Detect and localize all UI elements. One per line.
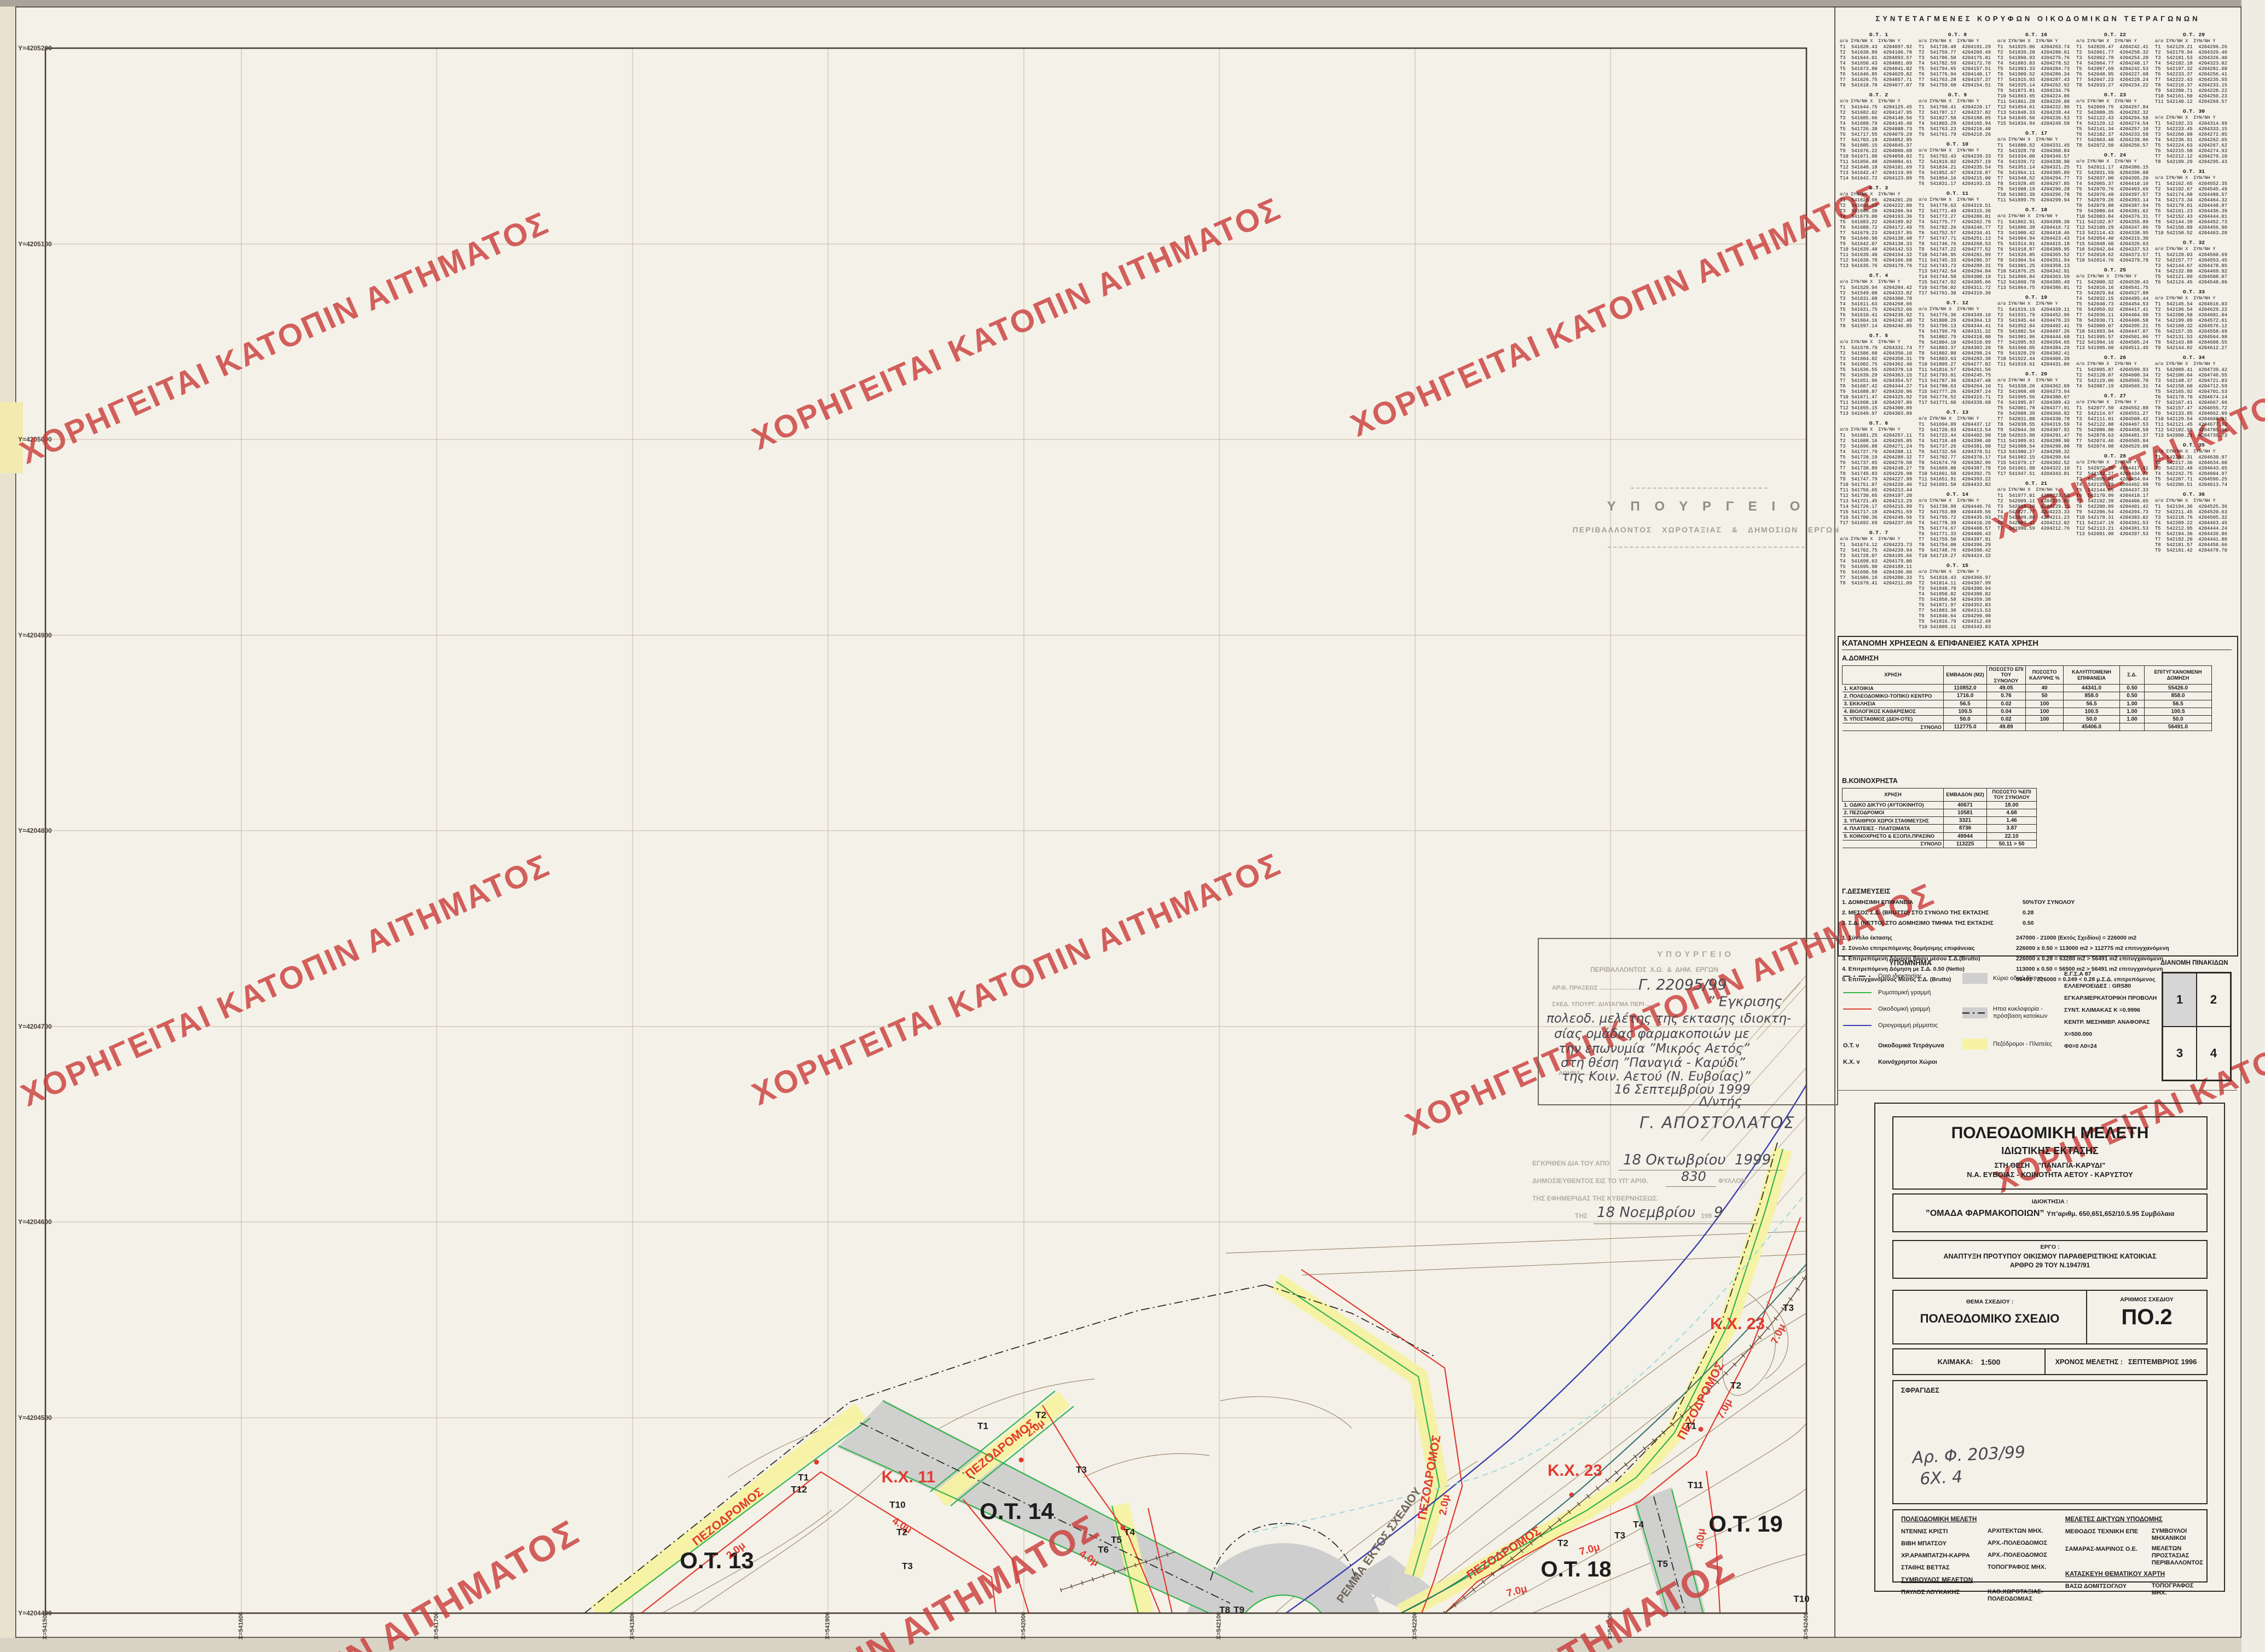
legend-line-item: Ρυμοτομική γραμμή: [1843, 989, 1931, 996]
usage-a-title: Α.ΔΟΜΗΣΗ: [1842, 654, 1879, 662]
coords-block: Ο.Τ. 33α/α ΣΥΝ/ΝΗ X ΣΥΝ/ΝΗ YT1 542145.54…: [2155, 289, 2233, 351]
usage-col-header: ΚΑΛΥΠΤΟΜΕΝΗ ΕΠΙΦΑΝΕΙΑ: [2064, 666, 2120, 685]
x-axis-label: X=542400: [1804, 1612, 1810, 1639]
team-section-header: ΣΥΜΒΟΥΛΟΣ ΜΕΛΕΤΩΝ: [1901, 1576, 2063, 1585]
plate-cell: 4: [2197, 1027, 2231, 1080]
coords-block: Ο.Τ. 36α/α ΣΥΝ/ΝΗ X ΣΥΝ/ΝΗ YT1 542194.36…: [2155, 491, 2233, 553]
theme-label: ΘΕΜΑ ΣΧΕΔΙΟΥ :: [1893, 1299, 2086, 1305]
usage-cell: 1.00: [2120, 700, 2145, 708]
x-axis-label: X=542000: [1021, 1612, 1027, 1639]
usage-table-a: ΧΡΗΣΗΕΜΒΑΔΟΝ (Μ2)ΠΟΣΟΣΤΟ ΕΠΙ ΤΟΥ ΣΥΝΟΛΟΥ…: [1842, 665, 2212, 731]
usage-cell: 5. ΥΠΟΣΤΑΘΜΟΣ (ΔΕΗ-ΟΤΕ): [1843, 715, 1944, 723]
usage-cell: 56.5: [2145, 700, 2212, 708]
coords-block: Ο.Τ. 26α/α ΣΥΝ/ΝΗ X ΣΥΝ/ΝΗ YT1 542095.87…: [2076, 355, 2154, 389]
approval-handwriting: Δ/ντής: [1699, 1096, 1742, 1109]
ownership-box: ΙΔΙΟΚΤΗΣΙΑ : ”ΟΜΑΔΑ ΦΑΡΜΑΚΟΠΟΙΩΝ” Υπ’αρι…: [1892, 1193, 2208, 1232]
legend-swatch-item: Πεζόδρομοι - Πλατείες: [1962, 1039, 2061, 1050]
x-axis-label: X=541500: [43, 1612, 49, 1639]
usage-cell: 1.00: [2120, 708, 2145, 715]
usage-cell: 3. ΕΚΚΛΗΣΙΑ: [1843, 700, 1944, 708]
coords-block: Ο.Τ. 13α/α ΣΥΝ/ΝΗ X ΣΥΝ/ΝΗ YT1 541694.09…: [1919, 409, 1996, 488]
usage-cell: 0.50: [2120, 692, 2145, 700]
stamps-label: ΣΦΡΑΓΙΔΕΣ: [1901, 1387, 2206, 1394]
gazette-handwriting: 18 Οκτωβρίου 1999: [1623, 1153, 1771, 1167]
coords-block: Ο.Τ. 3α/α ΣΥΝ/ΝΗ X ΣΥΝ/ΝΗ YT1 541620.08 …: [1840, 185, 1918, 269]
study-time-label: ΧΡΟΝΟΣ ΜΕΛΕΤΗΣ :: [2055, 1358, 2123, 1366]
scale-label: ΚΛΙΜΑΚΑ:: [1938, 1358, 1973, 1366]
y-axis-label: Y=4204600: [18, 1219, 52, 1225]
t-point-label: T3: [1783, 1303, 1794, 1313]
x-axis-label: X=542100: [1217, 1612, 1223, 1639]
usage-cell: 22.10: [1987, 832, 2037, 840]
gazette-underline: [1666, 1186, 1716, 1187]
usage-col-header: ΧΡΗΣΗ: [1843, 666, 1944, 685]
project-line2: ΑΡΘΡΟ 29 ΤΟΥ Ν.1947/91: [1893, 1261, 2206, 1269]
legend-line-sample: [1843, 1025, 1872, 1027]
usage-total-cell: 45406.0: [2064, 723, 2120, 731]
location-line2: Ν.Α. ΕΥΒΟΙΑΣ - ΚΟΙΝΟΤΗΤΑ ΑΕΤΟΥ - ΚΑΡΥΣΤΟ…: [1893, 1170, 2206, 1179]
approval-handwriting: στη θέση ”Παναγιά - Καρύδι”: [1561, 1057, 1745, 1070]
coords-block: Ο.Τ. 27α/α ΣΥΝ/ΝΗ X ΣΥΝ/ΝΗ YT1 542077.50…: [2076, 393, 2154, 449]
kx-label: Κ.Χ. 23: [1710, 1316, 1765, 1332]
constraint-line: 1. ΔΟΜΗΣΙΜΗ ΕΠΙΦΑΝΕΙΑ50%ΤΟΥ ΣΥΝΟΛΟΥ: [1842, 897, 2233, 908]
t-point-label: T5: [1657, 1560, 1668, 1569]
usage-col-header: ΕΠΙΤΥΓΧΑΝΟΜΕΝΗ ΔΟΜΗΣΗ: [2145, 666, 2212, 685]
number-label: ΑΡΙΘΜΟΣ ΣΧΕΔΙΟΥ: [2087, 1296, 2206, 1303]
usage-cell: 5. ΚΟΙΝΟΧΡΗΣΤΟ & ΕΞΟΠΛ.ΠΡΑΣΙΝΟ: [1843, 832, 1944, 840]
page-edge-top: [0, 0, 2265, 7]
title-box: ΠΟΛΕΟΔΟΜΙΚΗ ΜΕΛΕΤΗ ΙΔΙΩΤΙΚΗΣ ΕΚΤΑΣΗΣ ΣΤΗ…: [1892, 1116, 2208, 1190]
geodetic-note: Χ=500.000: [2064, 1031, 2092, 1037]
coords-block: Ο.Τ. 25α/α ΣΥΝ/ΝΗ X ΣΥΝ/ΝΗ YT1 542000.32…: [2076, 267, 2154, 351]
usage-col-header: ΧΡΗΣΗ: [1843, 789, 1944, 802]
coords-block: Ο.Τ. 11α/α ΣΥΝ/ΝΗ X ΣΥΝ/ΝΗ YT1 541770.63…: [1919, 190, 1996, 296]
geodetic-note: ΕΓΚΑΡ.ΜΕΡΚΑΤΟΡΙΚΗ ΠΡΟΒΟΛΗ: [2064, 995, 2157, 1001]
plate-cell: 1: [2163, 973, 2197, 1027]
t-point-label: T6: [1098, 1545, 1109, 1555]
usage-total-cell: [2120, 723, 2145, 731]
usage-cell: 100.5: [2064, 708, 2120, 715]
coords-column: Ο.Τ. 22α/α ΣΥΝ/ΝΗ X ΣΥΝ/ΝΗ YT1 542020.47…: [2076, 32, 2154, 541]
ministry-stamp-rule: [1608, 547, 1805, 548]
legend-title: ΥΠΟΜΝΗΜΑ: [1889, 959, 1932, 967]
legend-swatch-item: Κύριο οδικό δίκτυο: [1962, 973, 2061, 984]
coords-block: Ο.Τ. 24α/α ΣΥΝ/ΝΗ X ΣΥΝ/ΝΗ YT1 542011.17…: [2076, 152, 2154, 263]
usage-col-header: ΠΟΣΟΣΤΟ ΚΑΛΥΨΗΣ %: [2026, 666, 2064, 685]
t-point-label: T4: [1633, 1520, 1644, 1529]
geodetic-note: Φ0=0 Λ0=24: [2064, 1043, 2097, 1050]
usage-cell: 1716.0: [1944, 692, 1987, 700]
gazette-underline: [1619, 1170, 1783, 1170]
t-point-label: T4: [1124, 1528, 1135, 1537]
legend-swatch: [1962, 1007, 1988, 1018]
usage-cell: 1.00: [2120, 715, 2145, 723]
usage-cell: 0.50: [2120, 685, 2145, 692]
usage-cell: 56.5: [2064, 700, 2120, 708]
t-point-label: T5: [1111, 1535, 1122, 1545]
kx-label: Κ.Χ. 11: [882, 1469, 935, 1486]
legend-line-item: Οριο ιδιοκτησίας: [1843, 973, 1922, 979]
coords-block: Ο.Τ. 29α/α ΣΥΝ/ΝΗ X ΣΥΝ/ΝΗ YT1 542129.21…: [2155, 32, 2233, 105]
usage-cell: 110852.0: [1944, 685, 1987, 692]
team-section-header: ΜΕΛΕΤΕΣ ΔΙΚΤΥΩΝ ΥΠΟΔΟΜΗΣ: [2065, 1516, 2203, 1524]
team-section-header: ΠΟΛΕΟΔΟΜΙΚΗ ΜΕΛΕΤΗ: [1901, 1516, 2063, 1524]
usage-cell: 2. ΠΟΛΕΟΔΟΜΙΚΟ-ΤΟΠΙΚΟ ΚΕΝΤΡΟ: [1843, 692, 1944, 700]
project-box: ΕΡΓΟ : ΑΝΑΠΤΥΞΗ ΠΡΟΤΥΠΟΥ ΟΙΚΙΣΜΟΥ ΠΑΡΑΘΕ…: [1892, 1240, 2208, 1279]
t-point-label: T2: [1035, 1411, 1046, 1420]
gazette-printed: ΤΗΣ: [1575, 1213, 1588, 1219]
coords-block: Ο.Τ. 31α/α ΣΥΝ/ΝΗ X ΣΥΝ/ΝΗ YT1 542162.65…: [2155, 169, 2233, 236]
usage-cell: 49.05: [1987, 685, 2026, 692]
t-point-label: T1: [1685, 1422, 1696, 1431]
usage-cell: 10581: [1944, 809, 1987, 817]
check-line: 2. Σύνολο επιτρεπόμενης δομήσιμης επιφάν…: [1842, 943, 2233, 954]
coords-block: Ο.Τ. 2α/α ΣΥΝ/ΝΗ X ΣΥΝ/ΝΗ YT1 541644.75 …: [1840, 92, 1918, 181]
y-axis-label: Y=4204500: [18, 1415, 52, 1421]
usage-cell: 55426.0: [2145, 685, 2212, 692]
legend-line-sample: [1843, 992, 1872, 994]
t-point-label: T9: [1233, 1605, 1244, 1615]
usage-cell: 4.68: [1987, 809, 2037, 817]
t-point-label: T1: [977, 1422, 988, 1431]
block-label-ot19: Ο.Τ. 19: [1708, 1512, 1782, 1535]
usage-cell: 1. ΟΔΙΚΟ ΔΙΚΤΥΟ (ΑΥΤΟΚΙΝΗΤΟ): [1843, 801, 1944, 809]
team-section-header: ΚΑΤΑΣΚΕΥΗ ΘΕΜΑΤΙΚΟΥ ΧΑΡΤΗ: [2065, 1570, 2203, 1579]
usage-cell: 0.04: [1987, 708, 2026, 715]
usage-cell: 50: [2026, 692, 2064, 700]
t-point-label: T1: [798, 1473, 809, 1482]
approval-printed: ΠΕΡΙΒΑΛΛΟΝΤΟΣ Χ.Ω. & ΔΗΜ. ΕΡΓΩΝ: [1590, 966, 1718, 973]
width-label: 4.0μ: [1695, 1528, 1707, 1550]
coords-column: Ο.Τ. 8α/α ΣΥΝ/ΝΗ X ΣΥΝ/ΝΗ YT1 541730.48 …: [1919, 32, 1996, 634]
legend-swatch: [1962, 1039, 1988, 1050]
study-subtitle: ΙΔΙΩΤΙΚΗΣ ΕΚΤΑΣΗΣ: [1893, 1145, 2206, 1157]
ministry-stamp-subtitle: ΠΕΡΙΒΑΛΛΟΝΤΟΣ ΧΩΡΟΤΑΞΙΑΣ & ΔΗΜΟΣΙΩΝ ΕΡΓΩ…: [1573, 526, 1840, 534]
scale-box: ΚΛΙΜΑΚΑ: 1:500 ΧΡΟΝΟΣ ΜΕΛΕΤΗΣ : ΣΕΠΤΕΜΒΡ…: [1892, 1348, 2208, 1375]
gazette-printed: ΤΗΣ ΕΦΗΜΕΡΙΔΑΣ ΤΗΣ ΚΥΒΕΡΝΗΣΕΩΣ.: [1532, 1195, 1659, 1202]
approval-printed: ΣΧΕΔ. ΥΠΟΥΡΓ. ΔΙΑΤΑΓΜΑ ΠΕΡΙ ......: [1552, 1002, 1656, 1008]
owner-detail: Υπ’αριθμ. 650,651,652/10.5.95 Συμβόλαια: [2047, 1210, 2174, 1218]
project-line1: ΑΝΑΠΤΥΞΗ ΠΡΟΤΥΠΟΥ ΟΙΚΙΣΜΟΥ ΠΑΡΑΘΕΡΙΣΤΙΚΗ…: [1893, 1253, 2206, 1260]
team-box: ΠΟΛΕΟΔΟΜΙΚΗ ΜΕΛΕΤΗΝΤΕΝΝΙΣ ΚΡΙΣΤΙΑΡΧΙΤΕΚΤ…: [1892, 1509, 2208, 1583]
usage-b-title: Β.ΚΟΙΝΟΧΡΗΣΤΑ: [1842, 777, 1898, 785]
theme-box: ΘΕΜΑ ΣΧΕΔΙΟΥ : ΠΟΛΕΟΔΟΜΙΚΟ ΣΧΕΔΙΟ ΑΡΙΘΜΟ…: [1892, 1290, 2208, 1344]
legend-abbr-item: Κ.Χ. νΚοινόχρηστοι Χώροι: [1843, 1059, 1937, 1065]
usage-cell: 49944: [1944, 832, 1987, 840]
usage-total-cell: 50.11 > 50: [1987, 840, 2037, 848]
t-point-label: T10: [889, 1500, 905, 1510]
team-member-row: ΠΑΥΛΟΣ ΛΟΥΚΑΚΗΣΚΑΘ.ΧΩΡΟΤΑΞΙΑΣ-ΠΟΛΕΟΔΟΜΙΑ…: [1901, 1589, 2063, 1602]
usage-cell: 50.0: [1944, 715, 1987, 723]
t-point-label: T2: [1730, 1381, 1741, 1390]
usage-cell: 858.0: [2064, 692, 2120, 700]
usage-cell: 1. ΚΑΤΟΙΚΙΑ: [1843, 685, 1944, 692]
usage-col-header: ΠΟΣΟΣΤΟ %ΕΠΙ ΤΟΥ ΣΥΝΟΛΟΥ: [1987, 789, 2037, 802]
coords-block: Ο.Τ. 7α/α ΣΥΝ/ΝΗ X ΣΥΝ/ΝΗ YT1 541674.12 …: [1840, 530, 1918, 586]
usage-cell: 100: [2026, 708, 2064, 715]
usage-cell: 100: [2026, 700, 2064, 708]
coords-block: Ο.Τ. 23α/α ΣΥΝ/ΝΗ X ΣΥΝ/ΝΗ YT1 542069.75…: [2076, 92, 2154, 148]
location-line1: ΣΤΗ ΘΕΣΗ ”ΠΑΝΑΓΙΑ-ΚΑΡΥΔΙ”: [1893, 1161, 2206, 1169]
plan-sheet: Y=4205200Y=4205100Y=4205000Y=4204900Y=42…: [0, 0, 2265, 1652]
project-label: ΕΡΓΟ :: [1893, 1244, 2206, 1250]
coords-block: Ο.Τ. 19α/α ΣΥΝ/ΝΗ X ΣΥΝ/ΝΗ YT1 541919.19…: [1997, 294, 2075, 367]
coords-block: Ο.Τ. 5α/α ΣΥΝ/ΝΗ X ΣΥΝ/ΝΗ YT1 541578.79 …: [1840, 333, 1918, 416]
usage-total-cell: 112775.0: [1944, 723, 1987, 731]
coords-block: Ο.Τ. 34α/α ΣΥΝ/ΝΗ X ΣΥΝ/ΝΗ YT1 542089.41…: [2155, 355, 2233, 438]
block-label-ot18: Ο.Τ. 18: [1541, 1558, 1612, 1580]
gazette-printed: ΔΗΜΟΣΙΕΥΘΕΝΤΟΣ ΕΙΣ ΤΟ ΥΠ’ ΑΡΙΘ.: [1532, 1178, 1648, 1184]
approval-printed: ΥΠΟΥΡΓΕΙΟ: [1657, 950, 1734, 959]
usage-cell: 0.02: [1987, 715, 2026, 723]
coords-column: Ο.Τ. 16α/α ΣΥΝ/ΝΗ X ΣΥΝ/ΝΗ YT1 541825.86…: [1997, 32, 2075, 535]
building-lines-red: [641, 1218, 1800, 1613]
usage-table-b: ΧΡΗΣΗΕΜΒΑΔΟΝ (Μ2)ΠΟΣΟΣΤΟ %ΕΠΙ ΤΟΥ ΣΥΝΟΛΟ…: [1842, 788, 2037, 848]
coords-block: Ο.Τ. 15α/α ΣΥΝ/ΝΗ X ΣΥΝ/ΝΗ YT1 541810.43…: [1919, 563, 1996, 630]
usage-cell: 18.00: [1987, 801, 2037, 809]
t-point-label: T3: [1076, 1465, 1087, 1475]
coords-block: Ο.Τ. 8α/α ΣΥΝ/ΝΗ X ΣΥΝ/ΝΗ YT1 541730.48 …: [1919, 32, 1996, 88]
gazette-handwriting: 830: [1681, 1170, 1706, 1183]
y-axis-label: Y=4205200: [18, 45, 52, 51]
usage-cell: 0.76: [1987, 692, 2026, 700]
x-axis-label: X=541800: [630, 1612, 636, 1639]
coords-block: Ο.Τ. 4α/α ΣΥΝ/ΝΗ X ΣΥΝ/ΝΗ YT1 541520.94 …: [1840, 273, 1918, 329]
approval-handwriting: πολεοδ. μελέτης της εκτασης ιδιοκτη-: [1546, 1013, 1791, 1025]
legend-swatch-item: Ηπια κυκλοφορία - πρόσβαση κατοίκων: [1962, 1006, 2061, 1019]
usage-cell: 858.0: [2145, 692, 2212, 700]
usage-cell: 4. ΠΛΑΤΕΙΕΣ - ΠΛΑΤΩΜΑΤΑ: [1843, 825, 1944, 832]
plate-cell: 3: [2163, 1027, 2197, 1080]
study-title: ΠΟΛΕΟΔΟΜΙΚΗ ΜΕΛΕΤΗ: [1893, 1124, 2206, 1143]
block-label-ot14: Ο.Τ. 14: [980, 1500, 1053, 1523]
usage-col-header: ΕΜΒΑΔΟΝ (Μ2): [1944, 789, 1987, 802]
legend-line-item: Οριογραμμή ρέμματος: [1843, 1022, 1938, 1029]
kx-label: Κ.Χ. 23: [1548, 1463, 1602, 1479]
coords-block: Ο.Τ. 6α/α ΣΥΝ/ΝΗ X ΣΥΝ/ΝΗ YT1 541681.25 …: [1840, 420, 1918, 526]
y-axis-label: Y=4204800: [18, 827, 52, 834]
usage-cell: 0.02: [1987, 700, 2026, 708]
gazette-handwriting: 18 Νοεμβρίου: [1597, 1205, 1695, 1220]
usage-col-header: ΕΜΒΑΔΟΝ (Μ2): [1944, 666, 1987, 685]
stamps-box: ΣΦΡΑΓΙΔΕΣ Αρ. Φ. 203/99 6Χ. 4: [1892, 1380, 2208, 1504]
coords-block: Ο.Τ. 14α/α ΣΥΝ/ΝΗ X ΣΥΝ/ΝΗ YT1 541738.98…: [1919, 491, 1996, 559]
usage-c-title: Γ.ΔΕΣΜΕΥΣΕΙΣ: [1842, 888, 1890, 895]
team-member-row: ΧΡ.ΑΡΑΜΠΑΤΖΗ-ΚΑΡΡΑΑΡΧ.-ΠΟΛΕΟΔΟΜΟΣ: [1901, 1552, 2063, 1560]
geodetic-note: ΣΥΝΤ. ΚΛΙΜΑΚΑΣ Κ =0.9996: [2064, 1007, 2140, 1013]
gazette-underline: [1594, 1224, 1758, 1224]
gazette-printed: 199: [1701, 1213, 1712, 1219]
t-point-label: T2: [1557, 1539, 1568, 1548]
usage-cell: 3. ΥΠΑΙΘΡΙΟΙ ΧΩΡΟΙ ΣΤΑΘΜΕΥΣΗΣ: [1843, 817, 1944, 825]
number-value: ΠΟ.2: [2087, 1305, 2206, 1330]
constraint-line: 3. Σ.Δ. (NETTO) ΣΤΟ ΔΟΜΗΣΙΜΟ ΤΜΗΜΑ ΤΗΣ Ε…: [1842, 918, 2233, 929]
team-member-row: ΝΤΕΝΝΙΣ ΚΡΙΣΤΙΑΡΧΙΤΕΚΤΩΝ ΜΗΧ.: [1901, 1528, 2063, 1536]
plates-title: ΔΙΑΝΟΜΗ ΠΙΝΑΚΙΔΩΝ: [2160, 960, 2228, 966]
coords-block: Ο.Τ. 35α/α ΣΥΝ/ΝΗ X ΣΥΝ/ΝΗ YT1 542203.31…: [2155, 442, 2233, 488]
t-point-label: T11: [1688, 1481, 1703, 1490]
coords-block: Ο.Τ. 30α/α ΣΥΝ/ΝΗ X ΣΥΝ/ΝΗ YT1 542192.33…: [2155, 108, 2233, 165]
legend-line-sample: [1843, 976, 1872, 977]
approval-handwriting: της Κοιν. Αετού (Ν. Ευβοίας)”: [1562, 1071, 1751, 1083]
t-point-label: T2: [896, 1528, 907, 1537]
coords-column: Ο.Τ. 29α/α ΣΥΝ/ΝΗ X ΣΥΝ/ΝΗ YT1 542129.21…: [2155, 32, 2233, 557]
usage-col-header: Σ.Δ.: [2120, 666, 2145, 685]
legend-line-item: Οικοδομική γραμμή: [1843, 1006, 1930, 1012]
legend-line-sample: [1843, 1008, 1872, 1010]
y-axis-label: Y=4205100: [18, 241, 52, 247]
usage-cell: 50.0: [2145, 715, 2212, 723]
legend-abbr-item: Ο.Τ. νΟικοδομικά Τετράγωνα: [1843, 1042, 1944, 1049]
gazette-printed: ΕΓΚΡΙΘΕΝ ΔΙΑ ΤΟΥ ΑΠΟ: [1532, 1160, 1610, 1167]
approval-printed: ΑΡ.Θ. ΠΡΑΞΕΩΣ .........................: [1552, 986, 1641, 992]
approval-handwriting: την επωνυμία ”Μικρός Αετός”: [1559, 1043, 1750, 1056]
geodetic-note: ΚΕΝΤΡ. ΜΕΣΗΜΒΡ. ΑΝΑΦΟΡΑΣ: [2064, 1019, 2150, 1025]
t-point-label: T10: [1793, 1595, 1809, 1604]
gazette-printed: ΦΥΛΛΟΝ: [1718, 1178, 1746, 1184]
usage-cell: 50.0: [2064, 715, 2120, 723]
coords-block: Ο.Τ. 32α/α ΣΥΝ/ΝΗ X ΣΥΝ/ΝΗ YT1 542128.03…: [2155, 240, 2233, 285]
coords-table-title: ΣΥΝΤΕΤΑΓΜΕΝΕΣ ΚΟΡΥΦΩΝ ΟΙΚΟΔΟΜΙΚΩΝ ΤΕΤΡΑΓ…: [1875, 15, 2200, 22]
x-axis-label: X=541600: [239, 1612, 245, 1639]
team-member-row: ΒΑΣΩ ΔΟΜΙΤΣΟΓΛΟΥΤΟΠΟΓΡΑΦΟΣ ΜΗΧ.: [2065, 1583, 2203, 1596]
coords-block: Ο.Τ. 12α/α ΣΥΝ/ΝΗ X ΣΥΝ/ΝΗ YT1 541776.36…: [1919, 300, 1996, 405]
coords-block: Ο.Τ. 16α/α ΣΥΝ/ΝΗ X ΣΥΝ/ΝΗ YT1 541825.86…: [1997, 32, 2075, 126]
usage-total-cell: ΣΥΝΟΛΟ: [1843, 723, 1944, 731]
usage-cell: 3.87: [1987, 825, 2037, 832]
t-point-label: T8: [1219, 1605, 1230, 1615]
constraint-line: 2. ΜΕΣΟΣ Σ.Δ. (BRUTTO) ΣΤΟ ΣΥΝΟΛΟ ΤΗΣ ΕΚ…: [1842, 908, 2233, 918]
usage-cell: 3321: [1944, 817, 1987, 825]
usage-cell: 4. ΒΙΟΛΟΓΙΚΟΣ ΚΑΘΑΡΙΣΜΟΣ: [1843, 708, 1944, 715]
page-edge-right: [2241, 0, 2265, 1652]
geodetic-note: ΕΛΛΕΙΨΟΕΙΔΕΣ : GRS80: [2064, 983, 2131, 989]
t-point-label: T3: [902, 1562, 913, 1571]
coords-block: Ο.Τ. 17α/α ΣΥΝ/ΝΗ X ΣΥΝ/ΝΗ YT1 541880.52…: [1997, 130, 2075, 203]
coords-block: Ο.Τ. 22α/α ΣΥΝ/ΝΗ X ΣΥΝ/ΝΗ YT1 542020.47…: [2076, 32, 2154, 88]
scale-value: 1:500: [1981, 1358, 2001, 1366]
ministry-stamp-title: Υ Π Ο Υ Ρ Γ Ε Ι Ο: [1607, 500, 1806, 513]
usage-total-cell: 49.89: [1987, 723, 2026, 731]
usage-col-header: ΠΟΣΟΣΤΟ ΕΠΙ ΤΟΥ ΣΥΝΟΛΟΥ: [1987, 666, 2026, 685]
usage-cell: 2. ΠΕΖΟΔΡΟΜΟΙ: [1843, 809, 1944, 817]
legend-swatch: [1962, 973, 1988, 984]
usage-total-cell: [2026, 723, 2064, 731]
plate-cell: 2: [2197, 973, 2231, 1027]
study-time-value: ΣΕΠΤΕΜΒΡΙΟΣ 1996: [2128, 1358, 2197, 1366]
x-axis-label: X=542200: [1412, 1612, 1418, 1639]
y-axis-label: Y=4204900: [18, 632, 52, 639]
ministry-stamp-rule: [1631, 488, 1768, 489]
page-edge-left: [0, 0, 15, 1652]
team-member-row: ΣΑΜΑΡΑΣ-ΜΑΡΙΝΟΣ Ο.Ε.ΜΕΛΕΤΩΝ ΠΡΟΣΤΑΣΙΑΣ Π…: [2065, 1545, 2203, 1566]
approval-handwriting: ” Εγκρισης: [1707, 995, 1782, 1008]
coords-block: Ο.Τ. 18α/α ΣΥΝ/ΝΗ X ΣΥΝ/ΝΗ YT1 541862.91…: [1997, 207, 2075, 291]
usage-cell: 44341.0: [2064, 685, 2120, 692]
team-member-row: ΜΕΘΟΔΟΣ ΤΕΧΝΙΚΗ ΕΠΕΣΥΜΒΟΥΛΟΙ ΜΗΧΑΝΙΚΟΙ: [2065, 1528, 2203, 1541]
usage-cell: 100.5: [1944, 708, 1987, 715]
coords-block: Ο.Τ. 21α/α ΣΥΝ/ΝΗ X ΣΥΝ/ΝΗ YT1 541977.01…: [1997, 480, 2075, 531]
usage-total-cell: 113225: [1944, 840, 1987, 848]
t-point-label: T12: [791, 1485, 807, 1494]
usage-cell: 40671: [1944, 801, 1987, 809]
ownership-label: ΙΔΙΟΚΤΗΣΙΑ :: [1893, 1198, 2206, 1205]
team-member-row: ΒΙΒΗ ΜΠΑΤΣΟΥΑΡΧ.-ΠΟΛΕΟΔΟΜΟΣ: [1901, 1540, 2063, 1548]
usage-cell: 100.5: [2145, 708, 2212, 715]
coords-block: Ο.Τ. 9α/α ΣΥΝ/ΝΗ X ΣΥΝ/ΝΗ YT1 541760.41 …: [1919, 92, 1996, 137]
usage-cell: 40: [2026, 685, 2064, 692]
plate-distribution-grid: 1234: [2162, 972, 2232, 1081]
usage-cell: 56.5: [1944, 700, 1987, 708]
owner-name: ”ΟΜΑΔΑ ΦΑΡΜΑΚΟΠΟΙΩΝ”: [1926, 1209, 2044, 1218]
coords-block: Ο.Τ. 1α/α ΣΥΝ/ΝΗ X ΣΥΝ/ΝΗ YT1 541620.43 …: [1840, 32, 1918, 88]
panel-rule: [1838, 1090, 2237, 1091]
approval-handwriting: Γ. 22095/99: [1638, 978, 1727, 993]
approval-handwriting: σίας ομάδας φαρμακοποιών με: [1554, 1028, 1750, 1041]
usage-total-cell: ΣΥΝΟΛΟ: [1843, 840, 1944, 848]
usage-total-cell: 56491.0: [2145, 723, 2212, 731]
usage-cell: 8736: [1944, 825, 1987, 832]
coords-block: Ο.Τ. 20α/α ΣΥΝ/ΝΗ X ΣΥΝ/ΝΗ YT1 541938.26…: [1997, 371, 2075, 477]
y-axis-label: Y=4204700: [18, 1023, 52, 1030]
coords-column: Ο.Τ. 1α/α ΣΥΝ/ΝΗ X ΣΥΝ/ΝΗ YT1 541620.43 …: [1840, 32, 1918, 590]
approval-signature: Γ. ΑΠΟΣΤΟΛΑΤΟΣ: [1640, 1115, 1795, 1131]
geodetic-note: Ε.Γ.Σ.Α 87: [2064, 971, 2091, 977]
t-point-label: T3: [1614, 1531, 1625, 1540]
team-member-row: ΣΤΑΘΗΣ ΒΕΤΤΑΣΤΟΠΟΓΡΑΦΟΣ ΜΗΧ.: [1901, 1564, 2063, 1572]
usage-title: ΚΑΤΑΝΟΜΗ ΧΡΗΣΕΩΝ & ΕΠΙΦΑΝΕΙΕΣ ΚΑΤΑ ΧΡΗΣΗ: [1842, 639, 2232, 650]
x-axis-label: X=541900: [825, 1612, 831, 1639]
coords-block: Ο.Τ. 28α/α ΣΥΝ/ΝΗ X ΣΥΝ/ΝΗ YT1 542072.35…: [2076, 453, 2154, 537]
gazette-handwriting: 9: [1714, 1205, 1723, 1220]
usage-cell: 100: [2026, 715, 2064, 723]
check-line: 1. Σύνολο έκτασης247000 - 21000 (Εκτός Σ…: [1842, 933, 2233, 943]
theme-value: ΠΟΛΕΟΔΟΜΙΚΟ ΣΧΕΔΙΟ: [1893, 1312, 2086, 1326]
coords-block: Ο.Τ. 10α/α ΣΥΝ/ΝΗ X ΣΥΝ/ΝΗ YT1 541792.43…: [1919, 141, 1996, 187]
usage-cell: 1.46: [1987, 817, 2037, 825]
